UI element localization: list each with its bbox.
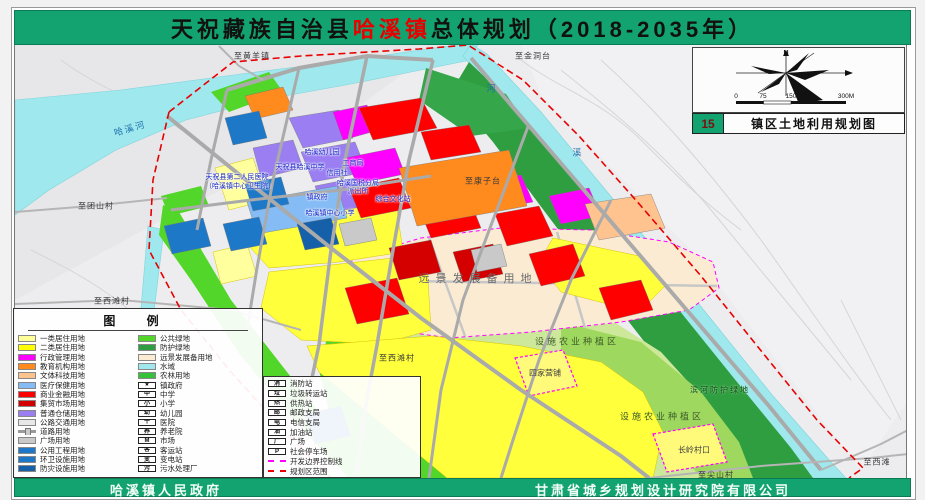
legend-symbol-icon: 电	[268, 419, 286, 426]
legend-swatch	[138, 363, 156, 370]
legend-symbol-icon: 中	[138, 391, 156, 398]
red-dash-symbol	[268, 470, 286, 472]
legend-item: 水域	[138, 362, 258, 371]
legend-item: 远景发展备用地	[138, 353, 258, 362]
sheet-title: 镇区土地利用规划图	[724, 113, 905, 134]
legend-symbol-icon: 广	[268, 438, 286, 445]
legend-symbol-icon: P	[268, 448, 286, 455]
legend-item: M市场	[138, 436, 258, 445]
legend-symbol-icon: 污	[138, 465, 156, 472]
legend-swatch	[18, 344, 36, 351]
legend-swatch	[18, 437, 36, 444]
legend-symbol-icon: 十	[138, 419, 156, 426]
legend-symbol-icon: 客	[138, 447, 156, 454]
legend-panel-symbols: 消消防站垃垃圾转运站热供热站邮邮政支局电电信支局油加油站广广场P社会停车场开发边…	[263, 376, 421, 478]
legend-item: 中中学	[138, 390, 258, 399]
legend-panel: 图 例 一类居住用地二类居住用地行政管理用地教育机构用地文体科技用地医疗保健用地…	[13, 308, 263, 478]
legend-swatch	[18, 410, 36, 417]
legend-item: ★镇政府	[138, 380, 258, 389]
legend-column-2: 公共绿地防护绿地远景发展备用地水域农林用地★镇政府中中学小小学幼幼儿园十医院养养…	[138, 334, 258, 473]
plan-title-banner: 天祝藏族自治县哈溪镇总体规划（2018-2035年）	[14, 10, 911, 45]
title-town-name: 哈溪镇	[353, 12, 431, 44]
legend-swatch	[18, 400, 36, 407]
legend-title: 图 例	[28, 312, 248, 331]
legend-item: 公路交通用地	[18, 418, 138, 427]
legend-symbol-icon: 邮	[268, 409, 286, 416]
legend-swatch	[18, 419, 36, 426]
legend-swatch	[18, 456, 36, 463]
legend-line-symbol	[18, 428, 36, 435]
scale-tick-300: 300M	[838, 93, 854, 100]
sheet-title-block: 15 镇区土地利用规划图	[692, 113, 905, 134]
compass-scale-svg: N 0 75 150 300M	[693, 48, 904, 112]
legend-swatch	[138, 372, 156, 379]
legend-swatch	[18, 391, 36, 398]
legend-item: 小小学	[138, 399, 258, 408]
footer-government: 哈溪镇人民政府	[110, 480, 222, 499]
legend-swatch	[18, 372, 36, 379]
legend-symbol-icon: 小	[138, 400, 156, 407]
legend-item: 公共绿地	[138, 334, 258, 343]
legend-column-1: 一类居住用地二类居住用地行政管理用地教育机构用地文体科技用地医疗保健用地商业金融…	[18, 334, 138, 473]
legend-symbol-icon: 幼	[138, 410, 156, 417]
magenta-dash-symbol	[268, 460, 286, 462]
road-symbol	[18, 430, 36, 433]
legend-item: 规划区范围	[268, 466, 416, 476]
legend-symbol-icon: ★	[138, 382, 156, 389]
map-inset-panel: N 0 75 150 300M	[692, 47, 905, 113]
legend-swatch	[18, 382, 36, 389]
legend-item: 变变电站	[138, 455, 258, 464]
legend-symbol-icon: 垃	[268, 390, 286, 397]
footer-banner: 哈溪镇人民政府 甘肃省城乡规划设计研究院有限公司	[14, 478, 911, 497]
legend-line-symbol	[268, 468, 286, 475]
legend-swatch	[138, 335, 156, 342]
legend-item: 客客运站	[138, 446, 258, 455]
legend-label: 污水处理厂	[160, 463, 198, 474]
title-suffix: 总体规划（2018-2035年）	[431, 12, 754, 44]
legend-item: 养养老院	[138, 427, 258, 436]
legend-swatch	[18, 363, 36, 370]
scale-tick-75: 75	[759, 93, 767, 100]
legend-symbol-icon: 消	[268, 380, 286, 387]
legend-item: 幼幼儿园	[138, 408, 258, 417]
legend-symbol-icon: 养	[138, 428, 156, 435]
legend-swatch	[138, 354, 156, 361]
legend-swatch	[18, 354, 36, 361]
sheet-number: 15	[692, 113, 724, 134]
legend-item: 防灾设施用地	[18, 464, 138, 473]
legend-swatch	[18, 447, 36, 454]
legend-symbol-icon: M	[138, 437, 156, 444]
legend-item: 十医院	[138, 418, 258, 427]
legend-swatch	[18, 335, 36, 342]
legend-symbol-icon: 变	[138, 456, 156, 463]
legend-symbol-icon: 热	[268, 400, 286, 407]
scale-tick-150: 150	[786, 93, 797, 100]
footer-institute: 甘肃省城乡规划设计研究院有限公司	[535, 480, 791, 499]
svg-text:N: N	[783, 50, 788, 57]
legend-label: 规划区范围	[290, 466, 328, 477]
legend-symbol-icon: 油	[268, 429, 286, 436]
title-prefix: 天祝藏族自治县	[171, 12, 353, 44]
legend-item: 污污水处理厂	[138, 464, 258, 473]
legend-swatch	[18, 465, 36, 472]
legend-item: 农林用地	[138, 371, 258, 380]
scale-bar: 0 75 150 300M	[734, 93, 854, 104]
legend-line-symbol	[268, 458, 286, 465]
legend-item: 道路用地	[18, 427, 138, 436]
scale-tick-0: 0	[734, 93, 738, 100]
legend-swatch	[138, 344, 156, 351]
legend-label: 防灾设施用地	[40, 463, 85, 474]
